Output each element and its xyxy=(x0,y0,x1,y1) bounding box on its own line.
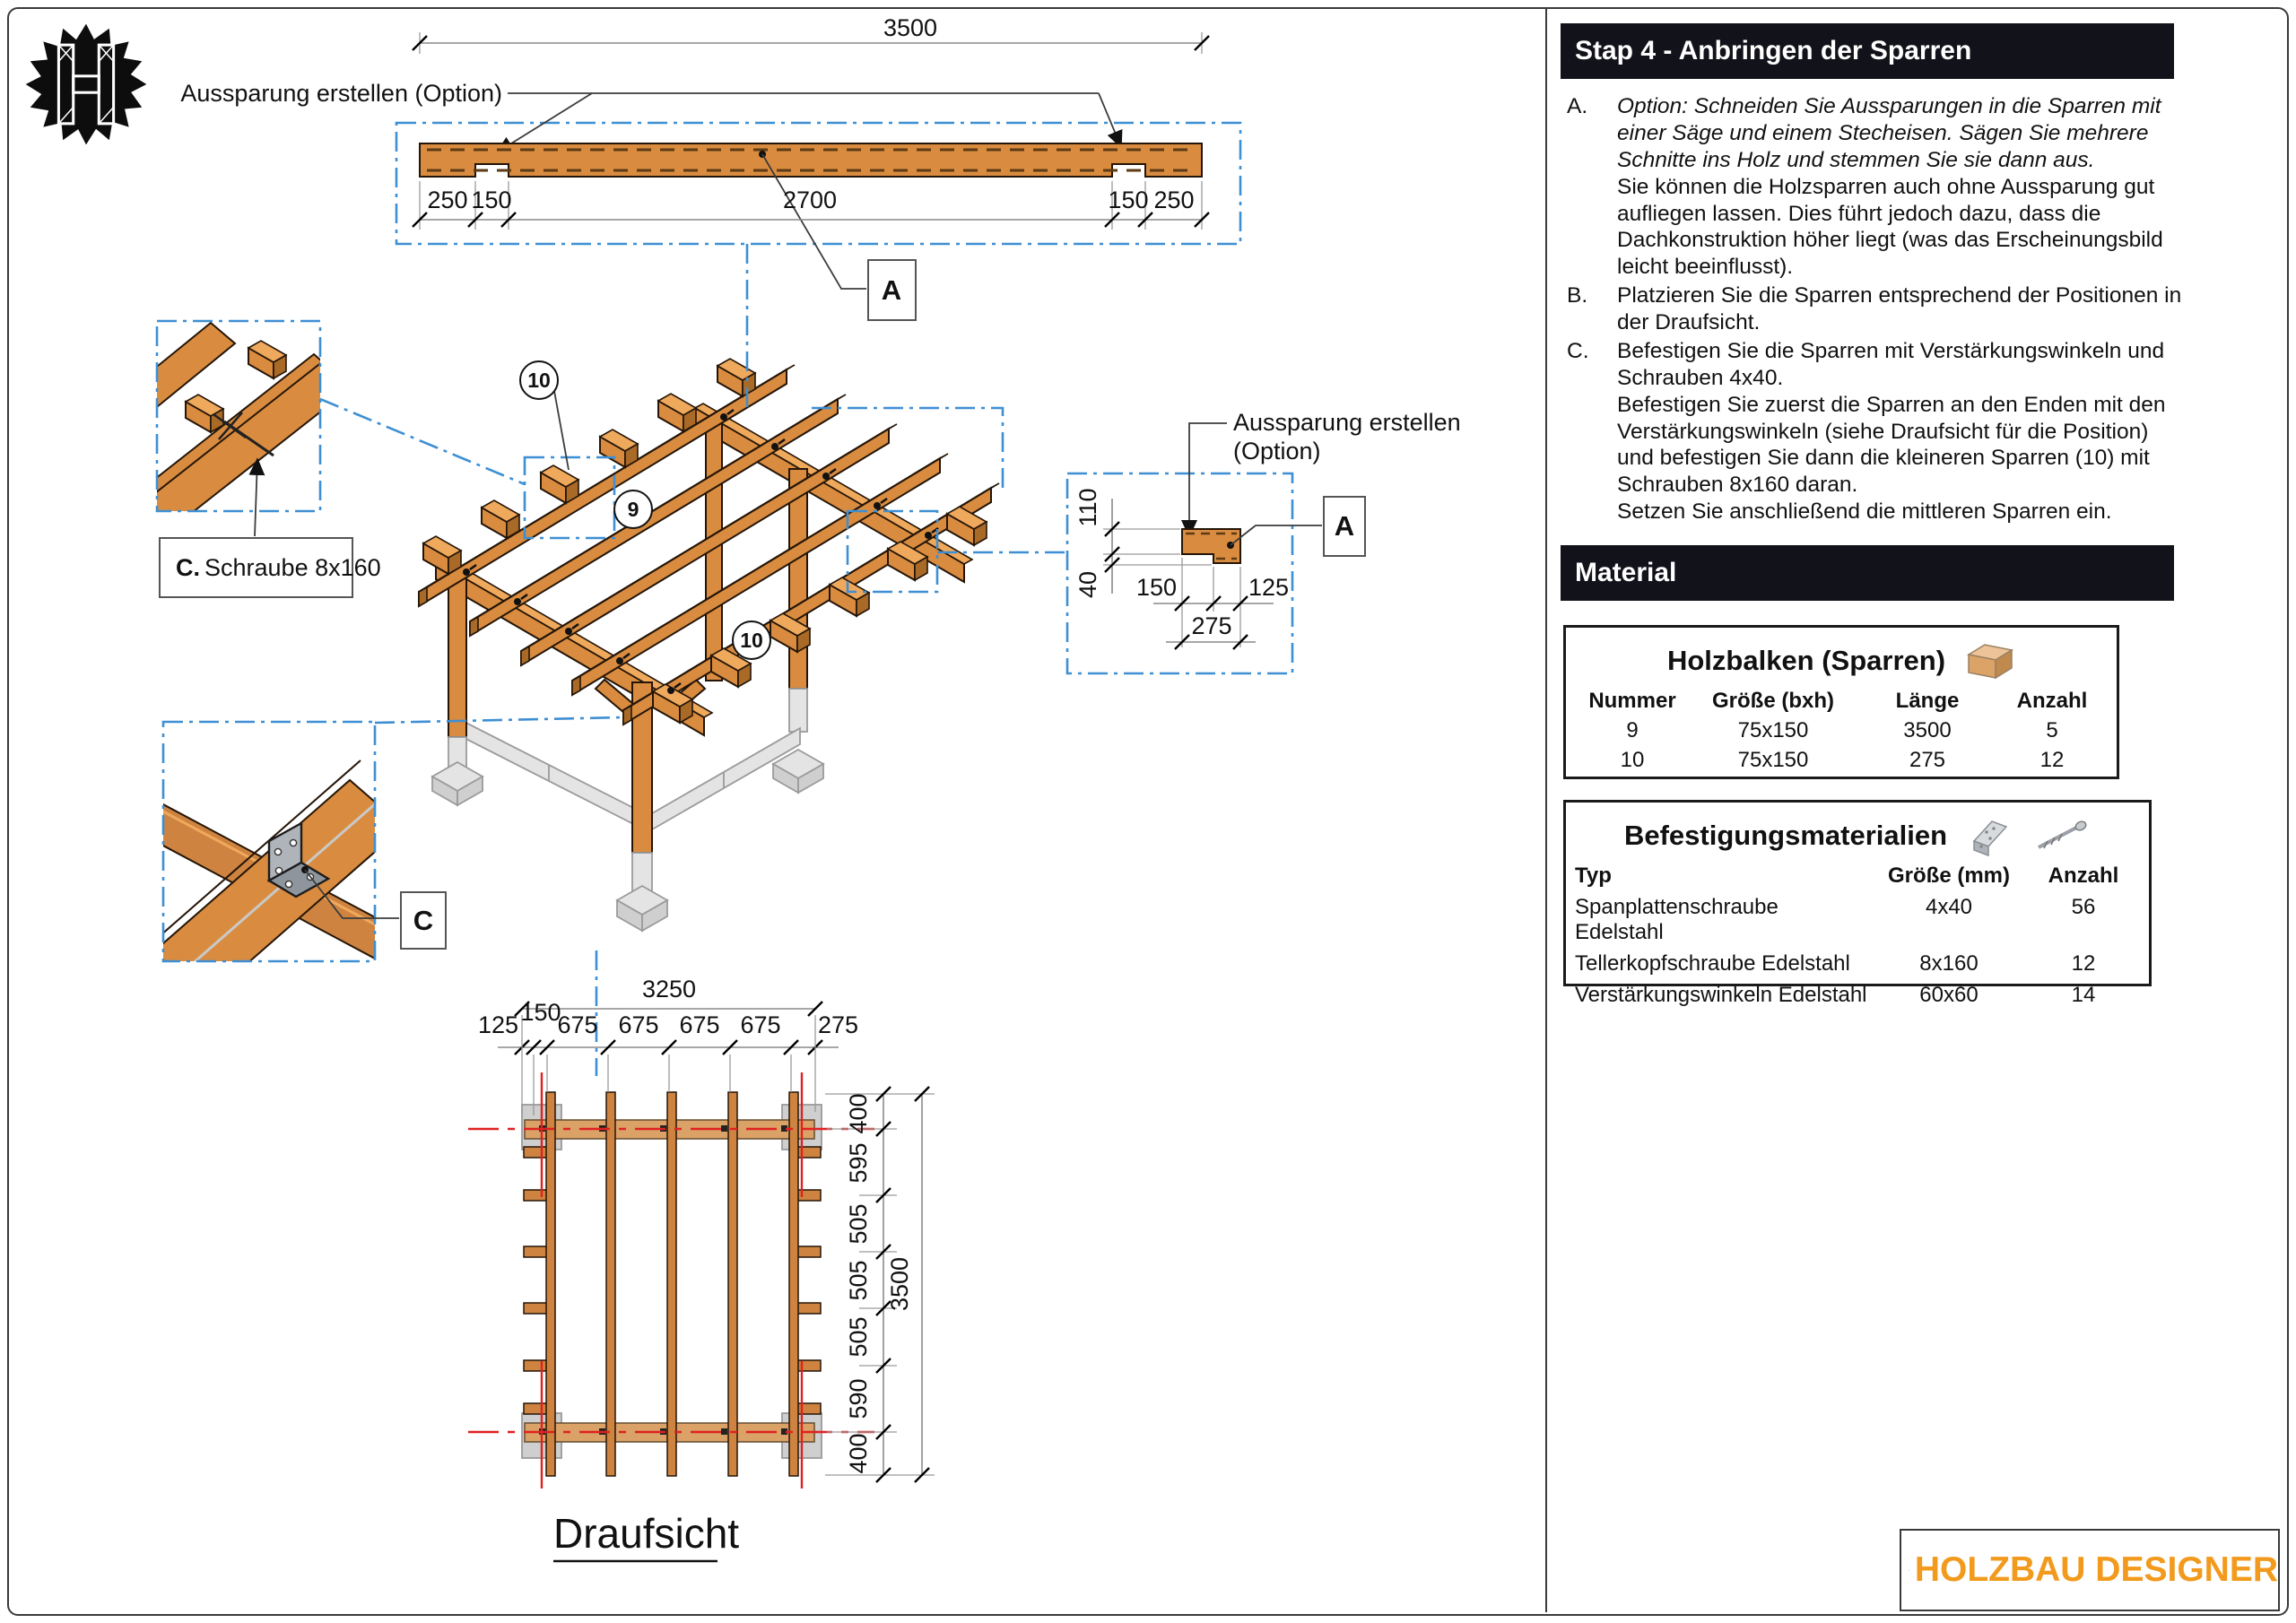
beam-side-view: 3500 Aussparung erstellen (Option) A 250… xyxy=(180,14,1240,320)
step-a: A. Option: Schneiden Sie Aussparungen in… xyxy=(1567,93,2184,281)
dim-plan-h6: 400 xyxy=(845,1433,872,1473)
plan-title: Draufsicht xyxy=(553,1510,739,1557)
detail-screw: C. Schraube 8x160 xyxy=(90,321,381,597)
dim-plan-h3: 505 xyxy=(845,1260,872,1300)
dim-plan-w3: 675 xyxy=(618,1011,658,1038)
rafters xyxy=(419,365,999,725)
dim-plan-w1: 150 xyxy=(520,999,561,1026)
section-note-2: (Option) xyxy=(1233,438,1321,464)
dim-plan-h0: 400 xyxy=(845,1093,872,1133)
cell: 3500 xyxy=(1857,718,1998,743)
step-a-label: A. xyxy=(1567,93,1617,281)
step-c: C. Befestigen Sie die Sparren mit Verstä… xyxy=(1567,338,2184,525)
section-detail: Aussparung erstellen (Option) A 110 40 1… xyxy=(1067,409,1461,673)
drawing-area: 3500 Aussparung erstellen (Option) A 250… xyxy=(0,0,1545,1623)
step-b: B. Platzieren Sie die Sparren entspreche… xyxy=(1567,282,2184,336)
col-anzahl2: Anzahl xyxy=(2031,864,2136,889)
dim-section-110: 110 xyxy=(1074,488,1101,526)
dim-plan-h4: 505 xyxy=(845,1316,872,1357)
cell: Spanplattenschraube Edelstahl xyxy=(1575,895,1867,945)
col-nummer: Nummer xyxy=(1575,689,1690,714)
dim-beam-5: 250 xyxy=(1153,187,1194,213)
dim-section-125: 125 xyxy=(1248,574,1289,601)
cell: 12 xyxy=(1998,748,2106,773)
cell: 12 xyxy=(2031,951,2136,976)
befestigung-table: Befestigungsmaterialien Typ Größe (mm) A… xyxy=(1563,800,2152,986)
brand-name: HOLZBAU DESIGNER xyxy=(1915,1550,2278,1590)
dim-plan-w6: 275 xyxy=(818,1011,858,1038)
holzbalken-title: Holzbalken (Sparren) xyxy=(1667,645,1945,677)
cell: 75x150 xyxy=(1690,718,1857,743)
befestigung-title: Befestigungsmaterialien xyxy=(1624,820,1947,852)
cell: 10 xyxy=(1575,748,1690,773)
cell: 4x40 xyxy=(1867,895,2031,945)
plan-view: 3250 125 150 675 675 675 675 275 400 59 xyxy=(468,976,935,1561)
dim-plan-w4: 675 xyxy=(679,1011,719,1038)
dim-section-275: 275 xyxy=(1191,612,1231,639)
cell: 5 xyxy=(1998,718,2106,743)
cell: 60x60 xyxy=(1867,983,2031,1008)
cell: 56 xyxy=(2031,895,2136,945)
dim-section-40: 40 xyxy=(1074,571,1101,598)
col-typ: Typ xyxy=(1575,864,1867,889)
cell: 14 xyxy=(2031,983,2136,1008)
company-logo xyxy=(11,11,163,168)
brand-logo-box: HOLZBAU DESIGNER xyxy=(1900,1529,2280,1611)
dim-plan-h5: 590 xyxy=(845,1378,872,1419)
step-c-text-3: Setzen Sie anschließend die mittleren Sp… xyxy=(1617,499,2184,525)
dim-plan-h2: 505 xyxy=(845,1203,872,1244)
detail-bracket: C xyxy=(135,722,446,1015)
material-header-bar: Material xyxy=(1561,545,2174,601)
step-title: Stap 4 - Anbringen der Sparren xyxy=(1575,36,1971,65)
cell: 8x160 xyxy=(1867,951,2031,976)
cell: 9 xyxy=(1575,718,1690,743)
cell: Tellerkopfschraube Edelstahl xyxy=(1575,951,1867,976)
col-groesse: Größe (bxh) xyxy=(1690,689,1857,714)
label-screw-bold: C. xyxy=(176,554,200,581)
section-note-1: Aussparung erstellen xyxy=(1233,409,1461,436)
dim-plan-w0: 125 xyxy=(478,1011,518,1038)
dim-beam-2: 150 xyxy=(471,187,511,213)
angle-bracket-icon xyxy=(1965,814,2015,857)
callout-10-top: 10 xyxy=(527,369,551,392)
cell: Verstärkungswinkeln Edelstahl xyxy=(1575,983,1867,1008)
step-a-option-text: Option: Schneiden Sie Aussparungen in di… xyxy=(1617,93,2184,174)
step-b-label: B. xyxy=(1567,282,1617,336)
dim-beam-total: 3500 xyxy=(883,14,937,41)
col-laenge: Länge xyxy=(1857,689,1998,714)
step-c-text-1: Befestigen Sie die Sparren mit Verstärku… xyxy=(1617,338,2184,392)
dim-section-150: 150 xyxy=(1136,574,1177,601)
callout-10-bottom: 10 xyxy=(740,629,763,652)
screw-icon xyxy=(2033,818,2091,854)
beam-note: Aussparung erstellen (Option) xyxy=(180,80,502,107)
dim-plan-total-h: 3500 xyxy=(886,1257,913,1311)
marker-c: C xyxy=(413,905,433,936)
sawblade-icon-small xyxy=(1909,1534,1909,1606)
step-b-text: Platzieren Sie die Sparren entsprechend … xyxy=(1617,282,2184,336)
step-header-bar: Stap 4 - Anbringen der Sparren xyxy=(1561,23,2174,79)
panel-divider xyxy=(1545,9,1547,1612)
dim-beam-3: 2700 xyxy=(783,187,837,213)
step-c-text-2: Befestigen Sie zuerst die Sparren an den… xyxy=(1617,392,2184,499)
label-screw-text: Schraube 8x160 xyxy=(204,554,381,581)
marker-a-section: A xyxy=(1335,510,1354,542)
col-anzahl: Anzahl xyxy=(1998,689,2106,714)
marker-a-beam: A xyxy=(882,274,901,306)
cell: 275 xyxy=(1857,748,1998,773)
instructions: A. Option: Schneiden Sie Aussparungen in… xyxy=(1567,93,2184,527)
dim-plan-h1: 595 xyxy=(845,1142,872,1183)
holzbalken-table: Holzbalken (Sparren) Nummer Größe (bxh) … xyxy=(1563,625,2119,779)
dim-plan-w5: 675 xyxy=(740,1011,780,1038)
dim-plan-w2: 675 xyxy=(557,1011,597,1038)
col-groesse-mm: Größe (mm) xyxy=(1867,864,2031,889)
dim-beam-1: 250 xyxy=(427,187,467,213)
iso-view: 10 9 10 xyxy=(320,244,1067,1076)
cell: 75x150 xyxy=(1690,748,1857,773)
step-c-label: C. xyxy=(1567,338,1617,525)
step-a-note-text: Sie können die Holzsparren auch ohne Aus… xyxy=(1617,174,2184,282)
section-boundary-beam xyxy=(396,123,1240,244)
dim-beam-4: 150 xyxy=(1108,187,1148,213)
dim-plan-total-w: 3250 xyxy=(642,976,696,1002)
callout-9: 9 xyxy=(628,498,639,521)
wood-beam-icon xyxy=(1963,640,2015,681)
